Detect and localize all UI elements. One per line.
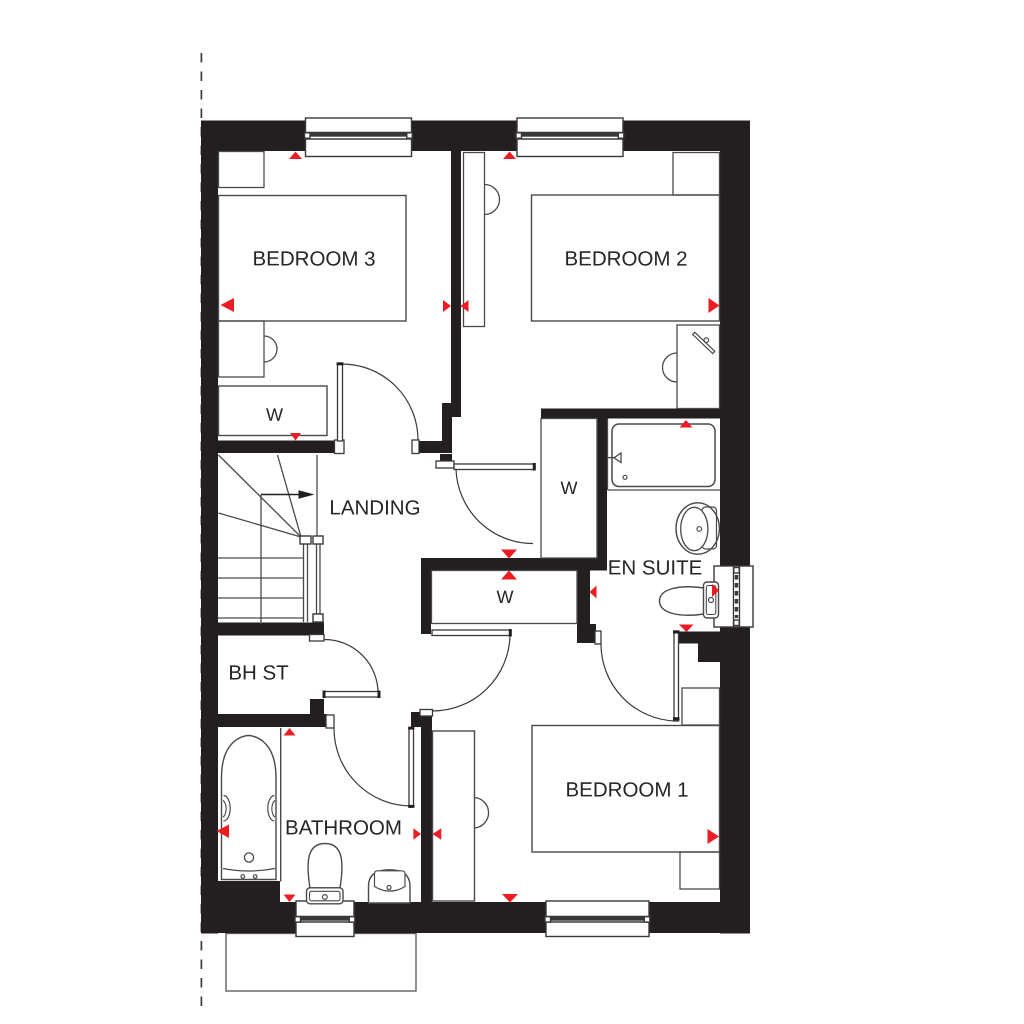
svg-text:BEDROOM 2: BEDROOM 2 bbox=[564, 247, 687, 270]
svg-text:BEDROOM 1: BEDROOM 1 bbox=[565, 778, 688, 801]
svg-text:EN SUITE: EN SUITE bbox=[608, 556, 703, 579]
svg-text:W: W bbox=[560, 478, 577, 498]
svg-text:BEDROOM 3: BEDROOM 3 bbox=[252, 247, 375, 270]
svg-text:BH ST: BH ST bbox=[228, 661, 289, 684]
svg-text:W: W bbox=[496, 587, 513, 607]
svg-text:LANDING: LANDING bbox=[329, 496, 420, 519]
svg-text:W: W bbox=[266, 405, 283, 425]
svg-text:BATHROOM: BATHROOM bbox=[285, 816, 402, 839]
